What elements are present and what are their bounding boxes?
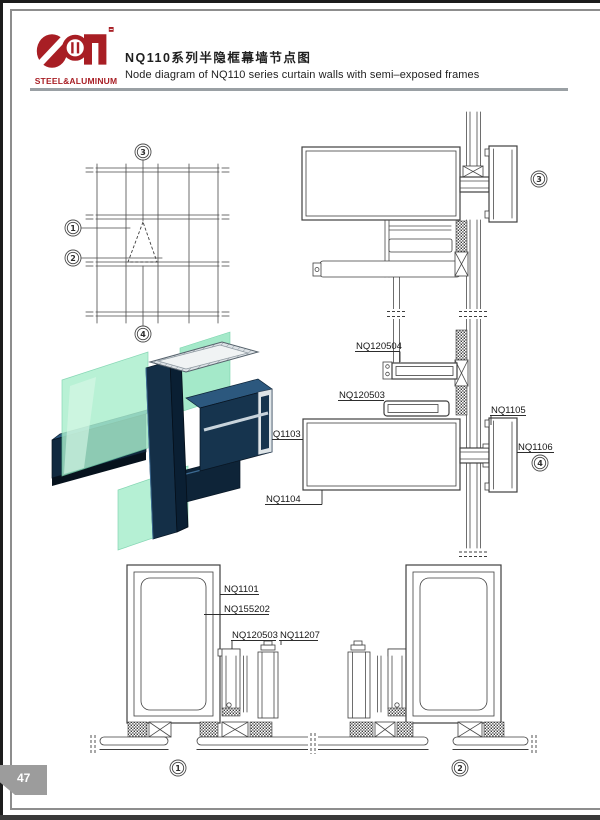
plan-marker-2: 2 bbox=[452, 760, 468, 776]
catalog-page: STEEL&ALUMINUM NQ110系列半隐框幕墙节点图 Node diag… bbox=[0, 0, 600, 820]
grid-transoms bbox=[86, 168, 229, 316]
elevation-grid-diagram: 3 4 1 2 bbox=[65, 144, 229, 342]
detail3-cover-cap bbox=[485, 146, 517, 222]
svg-text:4: 4 bbox=[537, 459, 543, 468]
svg-text:2: 2 bbox=[457, 764, 463, 773]
grid-marker-1: 1 bbox=[65, 220, 81, 236]
section-marker-4: 4 bbox=[532, 455, 548, 471]
label-nq1101: NQ1101 bbox=[220, 584, 259, 595]
detail3-glazing-beads bbox=[313, 220, 460, 277]
grid-marker-3: 3 bbox=[135, 144, 151, 160]
part-nq120504-shape bbox=[383, 362, 457, 379]
svg-text:NQ155202: NQ155202 bbox=[224, 604, 270, 615]
svg-text:3: 3 bbox=[140, 148, 146, 157]
svg-text:NQ1105: NQ1105 bbox=[491, 405, 526, 416]
label-nq11207: NQ11207 bbox=[279, 630, 320, 645]
svg-text:NQ1101: NQ1101 bbox=[224, 584, 259, 595]
grid-marker-4: 4 bbox=[135, 326, 151, 342]
svg-text:NQ120503: NQ120503 bbox=[232, 630, 278, 641]
svg-text:1: 1 bbox=[70, 224, 76, 233]
part-nq120503-mid-shape bbox=[384, 401, 449, 416]
detail1-mullion-box bbox=[127, 565, 220, 723]
section-marker-3: 3 bbox=[531, 171, 547, 187]
label-nq120503-mid: NQ120503 bbox=[338, 390, 385, 401]
label-nq1104: NQ1104 bbox=[265, 490, 322, 505]
setting-block-upper bbox=[455, 252, 468, 276]
detail2-vent-frames bbox=[348, 641, 410, 718]
detail3-connector bbox=[460, 177, 489, 192]
horizontal-section-details: NQ1101 NQ155202 NQ120503 NQ11207 1 bbox=[91, 565, 536, 776]
page-number: 47 bbox=[0, 765, 47, 785]
grid-marker-2: 2 bbox=[65, 250, 81, 266]
svg-text:1: 1 bbox=[175, 764, 181, 773]
label-nq120504: NQ120504 bbox=[355, 341, 402, 362]
detail4-connector bbox=[460, 444, 491, 467]
svg-text:NQ120504: NQ120504 bbox=[356, 341, 402, 352]
detail3-transom-box bbox=[302, 147, 460, 220]
detail1-vent-frames bbox=[218, 641, 278, 718]
vent-window-symbol bbox=[128, 222, 157, 262]
svg-text:NQ1106: NQ1106 bbox=[518, 442, 553, 453]
svg-text:2: 2 bbox=[70, 254, 76, 263]
svg-text:3: 3 bbox=[536, 175, 542, 184]
grid-mullions bbox=[97, 164, 218, 323]
detail3-glazing-gasket bbox=[463, 166, 483, 177]
vertical-section-details: NQ120504 NQ120503 NQ1103 NQ1104 NQ1105 bbox=[265, 112, 554, 557]
svg-text:NQ1104: NQ1104 bbox=[266, 494, 301, 505]
label-nq1106: NQ1106 bbox=[517, 442, 554, 453]
detail4-cover-cap bbox=[485, 418, 517, 492]
svg-text:NQ11207: NQ11207 bbox=[280, 630, 320, 641]
svg-text:NQ120503: NQ120503 bbox=[339, 390, 385, 401]
drawing-svg: 3 4 1 2 bbox=[0, 0, 600, 820]
detail4-transom-box bbox=[303, 419, 460, 490]
svg-text:4: 4 bbox=[140, 330, 146, 339]
isometric-render bbox=[52, 332, 272, 550]
plan-marker-1: 1 bbox=[170, 760, 186, 776]
detail2-mullion-box bbox=[406, 565, 501, 723]
